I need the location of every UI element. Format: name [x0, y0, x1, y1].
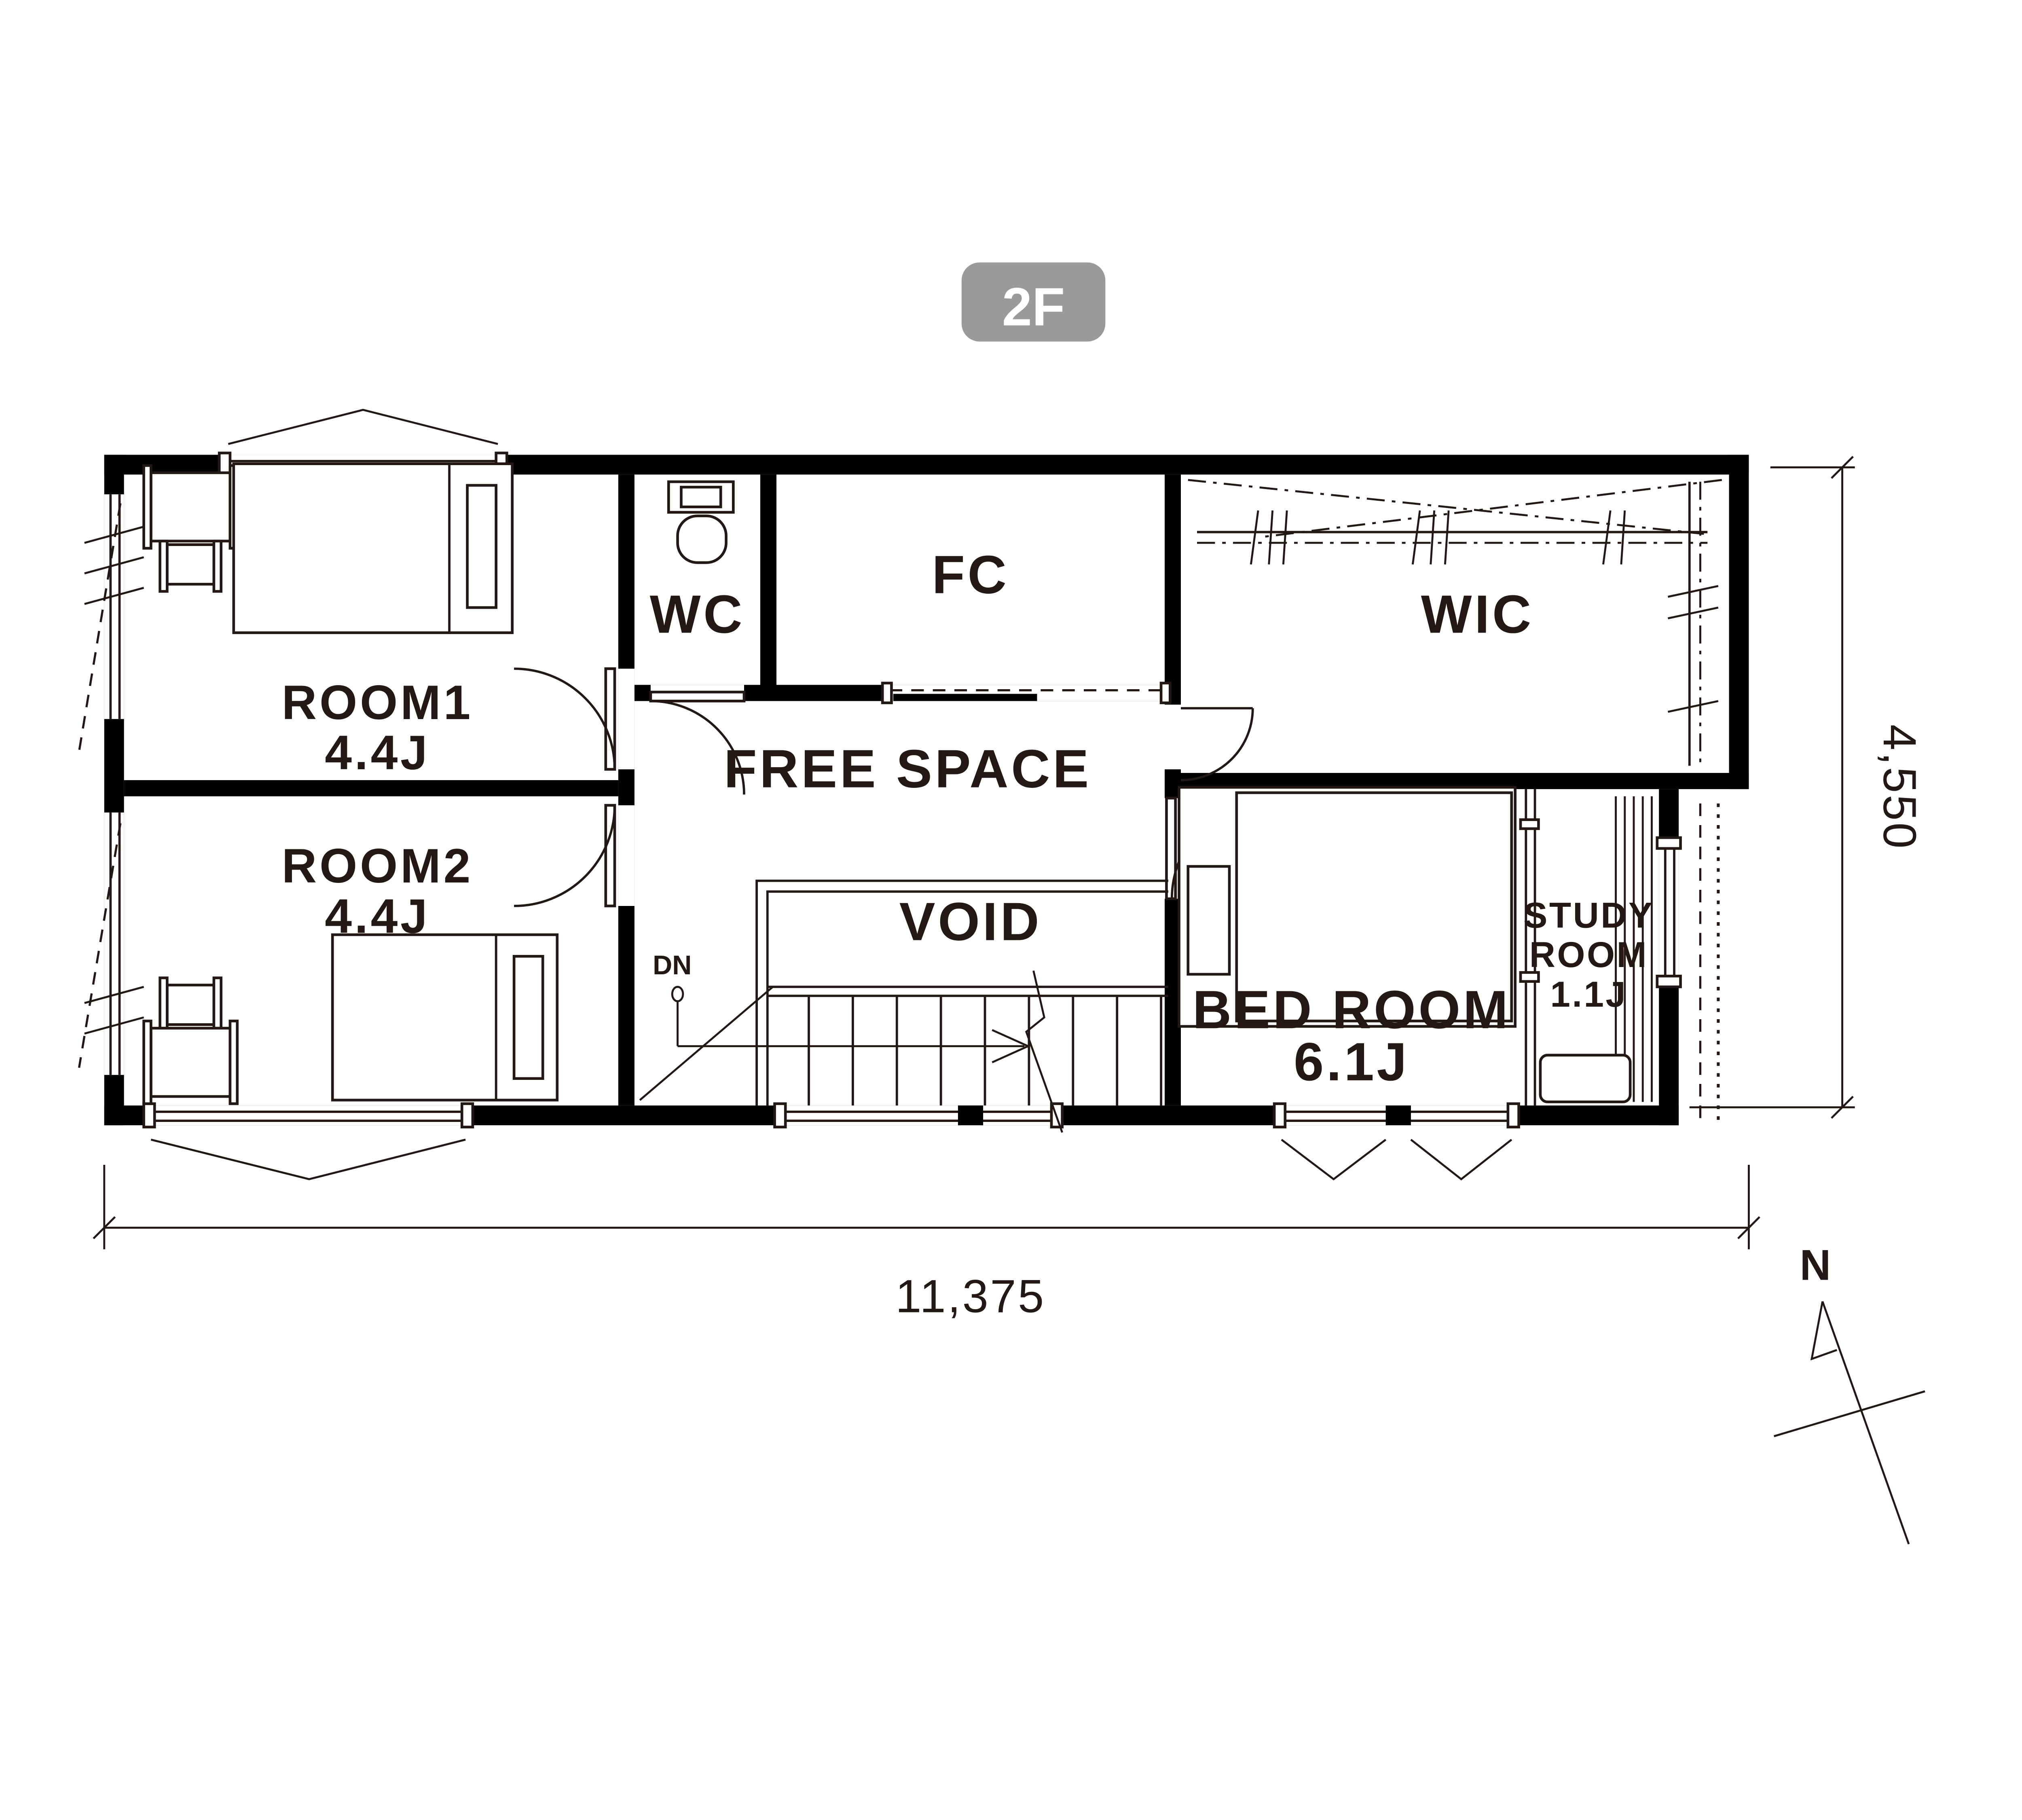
floor-badge: 2F [962, 262, 1106, 342]
room1-label: ROOM1 [282, 675, 473, 730]
door-wic [1181, 708, 1253, 780]
wc-label: WC [650, 584, 745, 644]
bedroom-label: BED ROOM [1193, 980, 1511, 1040]
dimension-width-label: 11,375 [895, 1270, 1046, 1322]
room2-desk [144, 1021, 237, 1103]
wic-hanger-ticks [1251, 510, 1624, 564]
door-room2 [514, 805, 615, 906]
study-room-label-line1: STUDY [1523, 895, 1654, 935]
north-arrow-icon: N [1774, 1240, 1925, 1544]
floor-plan-2f: 2F [0, 0, 2022, 1618]
room1-area: 4.4J [325, 726, 430, 780]
stair-treads [809, 996, 1161, 1105]
wall-wc-fc [760, 474, 776, 701]
window-room2-left [79, 813, 144, 1075]
wall-room-divider [124, 780, 618, 796]
study-desk [1540, 1055, 1630, 1102]
room1-chair [160, 541, 221, 591]
door-room1 [514, 669, 615, 769]
stairs-dn-label: DN [653, 950, 692, 980]
wic-label: WIC [1421, 584, 1534, 644]
room1-desk [144, 466, 237, 548]
free-space-label: FREE SPACE [724, 739, 1091, 799]
study-room-area: 1.1J [1550, 974, 1628, 1014]
stair-cut-line [640, 987, 773, 1100]
wall-right-upper [1729, 455, 1749, 789]
floor-badge-label: 2F [1002, 277, 1065, 337]
study-room-label-line2: ROOM [1529, 935, 1648, 975]
fc-label: FC [932, 545, 1009, 605]
room2-chair [160, 978, 221, 1028]
room1-bed [234, 464, 512, 633]
stair-direction-arrow [672, 987, 1028, 1062]
window-room1-left [79, 494, 144, 751]
floor-plan-page: 2F [0, 0, 2022, 1618]
room2-area: 4.4J [325, 889, 430, 944]
room2-label: ROOM2 [282, 839, 473, 893]
void-label: VOID [899, 891, 1042, 952]
wic-hanger-rod-right [1668, 482, 1718, 766]
room2-furniture [144, 935, 557, 1104]
room2-bed [332, 935, 557, 1100]
room1-furniture [144, 464, 512, 633]
dimension-width: 11,375 [93, 1165, 1760, 1322]
wall-corridor [618, 474, 635, 1105]
toilet-icon [668, 482, 733, 563]
dimension-height-label: 4,550 [1874, 724, 1926, 850]
north-label: N [1800, 1240, 1831, 1289]
bedroom-area: 6.1J [1294, 1032, 1409, 1092]
